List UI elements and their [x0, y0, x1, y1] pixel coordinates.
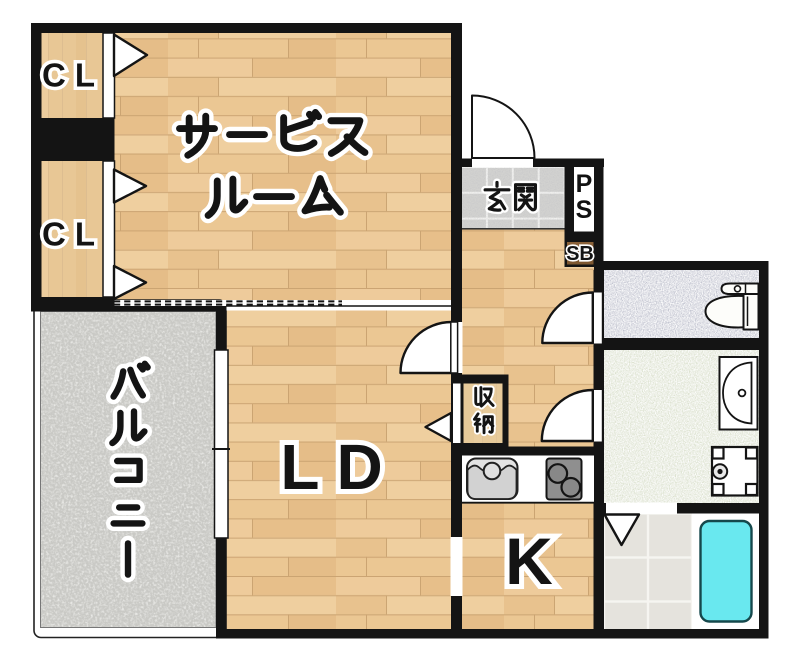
svg-text:LD: LD [280, 431, 399, 503]
svg-text:CL: CL [42, 57, 104, 94]
svg-text:SB: SB [566, 243, 594, 265]
svg-text:K: K [505, 524, 553, 598]
svg-text:P: P [576, 170, 593, 198]
svg-text:CL: CL [42, 216, 104, 253]
svg-text:S: S [576, 196, 593, 224]
